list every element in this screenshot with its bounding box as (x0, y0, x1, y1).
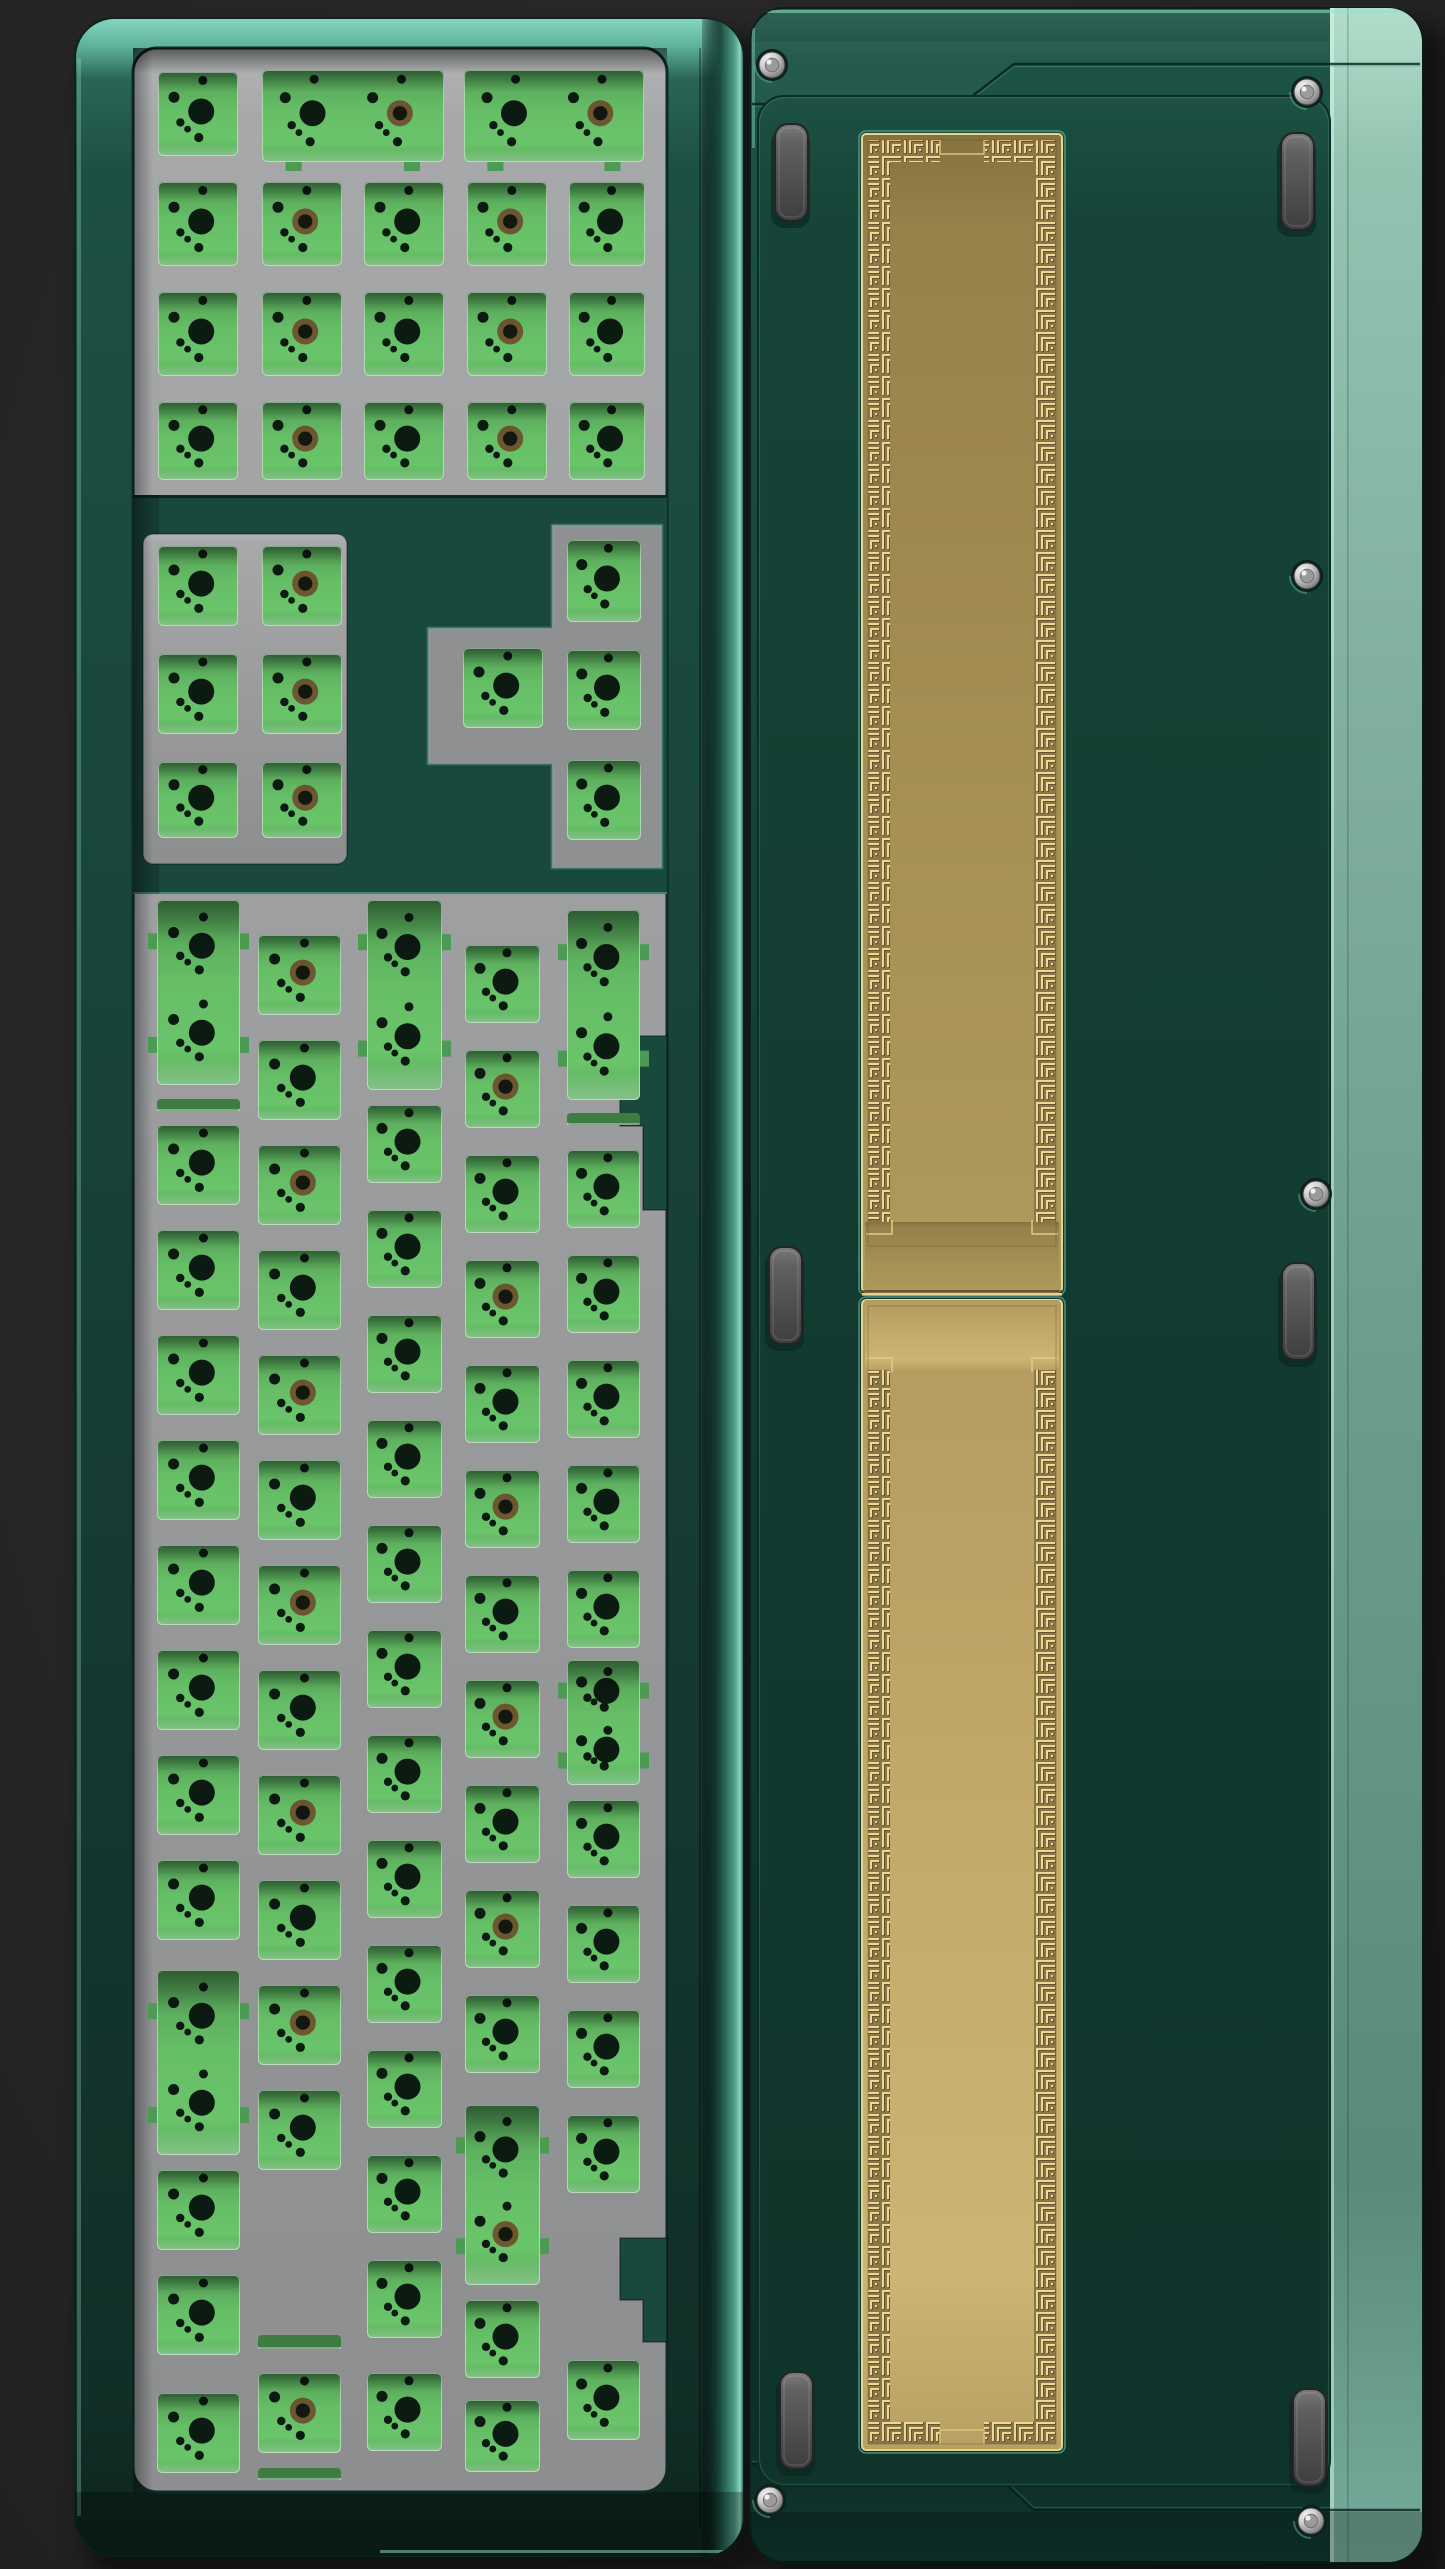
cutout-bevel-shade (258, 1880, 341, 1960)
slit-glint (567, 1123, 640, 1125)
cutout-bevel-shade (367, 900, 442, 1090)
switch-cutout (465, 1050, 540, 1128)
switch-cutout (367, 1735, 442, 1813)
switch-cutout (364, 292, 444, 376)
switch-cutout (569, 402, 645, 480)
switch-cutout (258, 1040, 341, 1120)
switch-cutout (569, 182, 645, 266)
meander-band-end (868, 2422, 940, 2444)
cutout-bevel-shade (157, 1650, 240, 1730)
cutout-bevel-shade (567, 910, 640, 1100)
screw-glint (1305, 2515, 1310, 2520)
switch-cutout (157, 1650, 240, 1730)
rubber-foot (776, 2372, 815, 2476)
cutout-bevel-shade (467, 402, 547, 480)
cutout-bevel-shade (465, 1050, 540, 1128)
cutout-bevel-shade (569, 292, 645, 376)
slit-glint (258, 2347, 341, 2349)
switch-cutout (157, 2393, 240, 2473)
foot-body (1293, 2389, 1326, 2486)
tall-stabilized-cutout (358, 900, 451, 1090)
switch-cutout (465, 2300, 540, 2378)
tall-stabilized-cutout (456, 2105, 549, 2285)
cutout-bevel-shade (258, 1040, 341, 1120)
switch-cutout (465, 1260, 540, 1338)
stab-notch (148, 933, 157, 949)
switch-cutout (465, 1155, 540, 1233)
stab-notch (540, 2238, 549, 2254)
cutout-bevel-shade (465, 2400, 540, 2472)
switch-cutout (262, 654, 342, 734)
switch-cutout (157, 1125, 240, 1205)
stab-notch (442, 1041, 451, 1057)
rubber-foot (765, 1247, 804, 1351)
cutout-bevel-shade (157, 1230, 240, 1310)
foot-body (780, 2372, 813, 2469)
meander-band-right (1034, 1306, 1056, 2444)
switch-cutout (463, 648, 543, 728)
switch-cutout (157, 2170, 240, 2250)
switch-cutout (367, 1210, 442, 1288)
switch-cutout (567, 1465, 640, 1543)
cutout-bevel-shade (158, 402, 238, 480)
right-keyboard-case-back (750, 8, 1422, 2562)
cutout-bevel-shade (262, 70, 444, 162)
cutout-bevel-shade (262, 546, 342, 626)
switch-cutout (567, 650, 641, 730)
switch-cutout (157, 1335, 240, 1415)
cutout-bevel-shade (567, 1570, 640, 1648)
cutout-bevel-shade (367, 1105, 442, 1183)
cutout-bevel-shade (157, 900, 240, 1085)
cutout-bevel-shade (465, 2300, 540, 2378)
nav-section-top-shadow (133, 495, 667, 498)
cutout-bevel-shade (567, 1465, 640, 1543)
cutout-bevel-shade (157, 1545, 240, 1625)
cutout-bevel-shade (262, 292, 342, 376)
cutout-bevel-shade (258, 1145, 341, 1225)
wide-stabilized-cutout (464, 70, 644, 171)
cutout-bevel-shade (465, 1260, 540, 1338)
switch-cutout (258, 1775, 341, 1855)
switch-cutout (262, 762, 342, 838)
cutout-bevel-shade (158, 292, 238, 376)
stab-notch (148, 1037, 157, 1053)
stab-notch (442, 934, 451, 950)
gold-accent-plate-bottom (859, 1297, 1065, 2453)
cutout-bevel-shade (364, 402, 444, 480)
switch-cutout (158, 292, 238, 376)
meander-band-end (984, 140, 1056, 162)
cutout-bevel-shade (158, 72, 238, 156)
gold-plate-field (862, 134, 1062, 1292)
switch-cutout (158, 546, 238, 626)
nav-section-bottom-glint (133, 892, 667, 894)
cutout-bevel-shade (465, 1155, 540, 1233)
switch-cutout (262, 182, 342, 266)
switch-cutout (367, 1630, 442, 1708)
switch-cutout (364, 402, 444, 480)
stab-notch (487, 162, 503, 171)
gold-seam-shadow (862, 1290, 1062, 1293)
cutout-bevel-shade (367, 1945, 442, 2023)
tall-stabilized-cutout (558, 910, 649, 1100)
stab-notch (640, 944, 649, 960)
switch-cutout (158, 182, 238, 266)
meander-band-end (984, 2422, 1056, 2444)
keyboard-render-canvas (0, 0, 1445, 2569)
switch-cutout (367, 2155, 442, 2233)
cutout-bevel-shade (467, 182, 547, 266)
stab-notch (640, 1051, 649, 1067)
screw-glint (766, 59, 771, 64)
gold-plate-field (862, 1300, 1062, 2450)
switch-cutout (465, 1890, 540, 1968)
switch-cutout (467, 402, 547, 480)
switch-cutout (567, 1800, 640, 1878)
switch-cutout (467, 292, 547, 376)
cutout-bevel-shade (367, 1840, 442, 1918)
stabilizer-slit-cutout (258, 2468, 341, 2480)
switch-cutout (157, 1545, 240, 1625)
cutout-bevel-shade (367, 2373, 442, 2451)
switch-cutout (465, 2400, 540, 2472)
stab-notch (558, 944, 567, 960)
cutout-bevel-shade (258, 1250, 341, 1330)
switch-cutout (364, 182, 444, 266)
well-left-shadow (133, 48, 153, 2492)
switch-cutout (258, 1145, 341, 1225)
switch-cutout (258, 1460, 341, 1540)
switch-cutout (157, 2275, 240, 2355)
switch-cutout (258, 1355, 341, 1435)
cutout-bevel-shade (258, 1670, 341, 1750)
stab-notch (148, 2003, 157, 2019)
cutout-bevel-shade (567, 760, 641, 840)
screw-glint (1301, 86, 1306, 91)
cutout-bevel-shade (567, 2115, 640, 2193)
cutout-bevel-shade (465, 1470, 540, 1548)
switch-cutout (157, 1230, 240, 1310)
meander-band-right (1034, 140, 1056, 1286)
switch-cutout (367, 1420, 442, 1498)
cutout-bevel-shade (465, 1365, 540, 1443)
cutout-bevel-shade (258, 1460, 341, 1540)
cutout-bevel-shade (465, 1575, 540, 1653)
cutout-bevel-shade (463, 648, 543, 728)
switch-cutout (465, 945, 540, 1023)
cutout-bevel-shade (465, 1680, 540, 1758)
switch-cutout (367, 1840, 442, 1918)
cutout-bevel-shade (258, 1355, 341, 1435)
cutout-bevel-shade (567, 1255, 640, 1333)
stab-notch (540, 2137, 549, 2153)
cutout-bevel-shade (367, 1630, 442, 1708)
cutout-bevel-shade (157, 1755, 240, 1835)
screw-glint (764, 2494, 769, 2499)
cutout-bevel-shade (158, 546, 238, 626)
switch-cutout (157, 1860, 240, 1940)
cutout-bevel-shade (367, 2155, 442, 2233)
cutout-bevel-shade (158, 654, 238, 734)
switch-cutout (467, 182, 547, 266)
switch-cutout (258, 1985, 341, 2065)
switch-cutout (262, 402, 342, 480)
switch-cutout (258, 1250, 341, 1330)
foot-body (1281, 133, 1314, 230)
cutout-bevel-shade (262, 402, 342, 480)
switch-cutout (258, 935, 341, 1015)
switch-cutout (258, 1565, 341, 1645)
switch-cutout (567, 2010, 640, 2088)
switch-cutout (567, 760, 641, 840)
cutout-bevel-shade (262, 654, 342, 734)
stab-notch (640, 1753, 649, 1769)
cutout-bevel-shade (567, 2010, 640, 2088)
cutout-bevel-shade (367, 2260, 442, 2338)
switch-cutout (258, 2090, 341, 2170)
stab-notch (240, 2107, 249, 2123)
cutout-bevel-shade (467, 292, 547, 376)
cutout-bevel-shade (567, 1800, 640, 1878)
switch-cutout (367, 1315, 442, 1393)
switch-cutout (465, 1995, 540, 2073)
switch-cutout (158, 402, 238, 480)
switch-cutout (567, 1360, 640, 1438)
rubber-foot (771, 124, 810, 228)
cutout-bevel-shade (367, 1420, 442, 1498)
cutout-bevel-shade (157, 1860, 240, 1940)
cutout-bevel-shade (158, 182, 238, 266)
stabilizer-slit-cutout (157, 1099, 240, 1111)
switch-cutout (367, 1105, 442, 1183)
switch-cutout (258, 1880, 341, 1960)
stab-notch (604, 162, 620, 171)
switch-cutout (258, 2373, 341, 2453)
switch-cutout (158, 762, 238, 838)
cutout-bevel-shade (262, 762, 342, 838)
cutout-bevel-shade (258, 935, 341, 1015)
switch-cutout (567, 2360, 640, 2440)
cutout-bevel-shade (258, 1985, 341, 2065)
switch-cutout (262, 546, 342, 626)
cutout-bevel-shade (157, 1440, 240, 1520)
switch-cutout (367, 2260, 442, 2338)
gold-plain-zone (865, 1222, 1059, 1292)
case-bottom-shade (75, 2492, 743, 2556)
rubber-foot (1277, 133, 1316, 237)
switch-cutout (367, 1945, 442, 2023)
rubber-foot (1278, 1263, 1317, 1367)
cutout-bevel-shade (567, 2360, 640, 2440)
switch-cutout (262, 292, 342, 376)
tall-stabilized-cutout (148, 1970, 249, 2155)
case-top-edge-glint (750, 10, 1422, 13)
stab-notch (240, 2003, 249, 2019)
slit-shade (258, 2335, 341, 2349)
screw-glint (1301, 570, 1306, 575)
cutout-bevel-shade (258, 1775, 341, 1855)
cutout-bevel-shade (157, 1335, 240, 1415)
switch-cutout (465, 1365, 540, 1443)
gold-seam-highlight (862, 1293, 1062, 1296)
stab-notch (286, 162, 302, 171)
case-right-side-face (702, 18, 743, 2556)
switch-cutout (367, 2373, 442, 2451)
stab-notch (558, 1051, 567, 1067)
cutout-bevel-shade (567, 1660, 640, 1785)
stab-notch (240, 933, 249, 949)
switch-cutout (158, 72, 238, 156)
cutout-bevel-shade (465, 945, 540, 1023)
stabilizer-slit-cutout (258, 2335, 341, 2349)
switch-cutout (367, 2050, 442, 2128)
tall-stabilized-cutout (558, 1660, 649, 1785)
slit-glint (258, 2478, 341, 2480)
cutout-bevel-shade (567, 540, 641, 622)
stab-notch (456, 2238, 465, 2254)
switch-cutout (465, 1785, 540, 1863)
cutout-bevel-shade (258, 1565, 341, 1645)
cutout-bevel-shade (567, 1360, 640, 1438)
cutout-bevel-shade (465, 1890, 540, 1968)
gold-plain-zone (865, 1300, 1059, 1370)
case-right-seam (699, 48, 701, 2526)
cutout-bevel-shade (569, 402, 645, 480)
stab-notch (558, 1683, 567, 1699)
switch-cutout (258, 1670, 341, 1750)
switch-cutout (465, 1575, 540, 1653)
stabilizer-slit-cutout (567, 1113, 640, 1125)
cutout-bevel-shade (465, 1995, 540, 2073)
cutout-bevel-shade (157, 1970, 240, 2155)
cutout-bevel-shade (258, 2090, 341, 2170)
switch-cutout (157, 1755, 240, 1835)
side-wall-seam (1347, 8, 1349, 2562)
cutout-bevel-shade (567, 1150, 640, 1228)
stab-notch (358, 1041, 367, 1057)
switch-cutout (567, 1150, 640, 1228)
stab-notch (240, 1037, 249, 1053)
case-side-wall (1330, 8, 1422, 2562)
slit-glint (157, 1109, 240, 1111)
cutout-bevel-shade (367, 1210, 442, 1288)
cutout-bevel-shade (367, 1735, 442, 1813)
stab-notch (404, 162, 420, 171)
switch-cutout (157, 1440, 240, 1520)
cutout-bevel-shade (367, 1315, 442, 1393)
stab-notch (456, 2137, 465, 2153)
cutout-bevel-shade (569, 182, 645, 266)
tall-stabilized-cutout (148, 900, 249, 1085)
cutout-bevel-shade (567, 650, 641, 730)
foot-body (1282, 1263, 1315, 1360)
cutout-bevel-shade (258, 2373, 341, 2453)
switch-cutout (567, 1905, 640, 1983)
stab-notch (148, 2107, 157, 2123)
cutout-bevel-shade (262, 182, 342, 266)
meander-band-left (868, 1306, 890, 2444)
meander-band-left (868, 140, 890, 1286)
cutout-bevel-shade (465, 1785, 540, 1863)
left-keyboard-plate-assembly (75, 18, 743, 2556)
switch-cutout (567, 540, 641, 622)
switch-cutout (465, 1470, 540, 1548)
cutout-bevel-shade (464, 70, 644, 162)
switch-cutout (158, 654, 238, 734)
meander-band-end (868, 140, 940, 162)
cutout-bevel-shade (364, 182, 444, 266)
cutout-bevel-shade (364, 292, 444, 376)
stab-notch (558, 1753, 567, 1769)
case-back-details (750, 8, 1422, 2562)
rubber-foot (1289, 2389, 1328, 2493)
wide-stabilized-cutout (262, 70, 444, 171)
screw-glint (1310, 1188, 1315, 1193)
switch-cutout (567, 1570, 640, 1648)
gold-accent-plate-top (859, 131, 1065, 1295)
cutout-bevel-shade (465, 2105, 540, 2285)
case-left-edge-glint (77, 58, 81, 2516)
foot-body (775, 124, 808, 221)
cutout-bevel-shade (567, 1905, 640, 1983)
render-stage (0, 0, 1445, 2569)
stab-notch (640, 1683, 649, 1699)
switch-cutout (567, 2115, 640, 2193)
switch-cutout (367, 1525, 442, 1603)
switch-cutout (567, 1255, 640, 1333)
cutout-bevel-shade (367, 2050, 442, 2128)
switch-cutout (465, 1680, 540, 1758)
foot-body (769, 1247, 802, 1344)
cutout-bevel-shade (157, 1125, 240, 1205)
cutout-bevel-shade (157, 2275, 240, 2355)
cutout-bevel-shade (158, 762, 238, 838)
switch-cutout (569, 292, 645, 376)
cutout-bevel-shade (157, 2393, 240, 2473)
cutout-bevel-shade (157, 2170, 240, 2250)
cutout-bevel-shade (367, 1525, 442, 1603)
case-bottom-glint (380, 2550, 740, 2553)
stab-notch (358, 934, 367, 950)
